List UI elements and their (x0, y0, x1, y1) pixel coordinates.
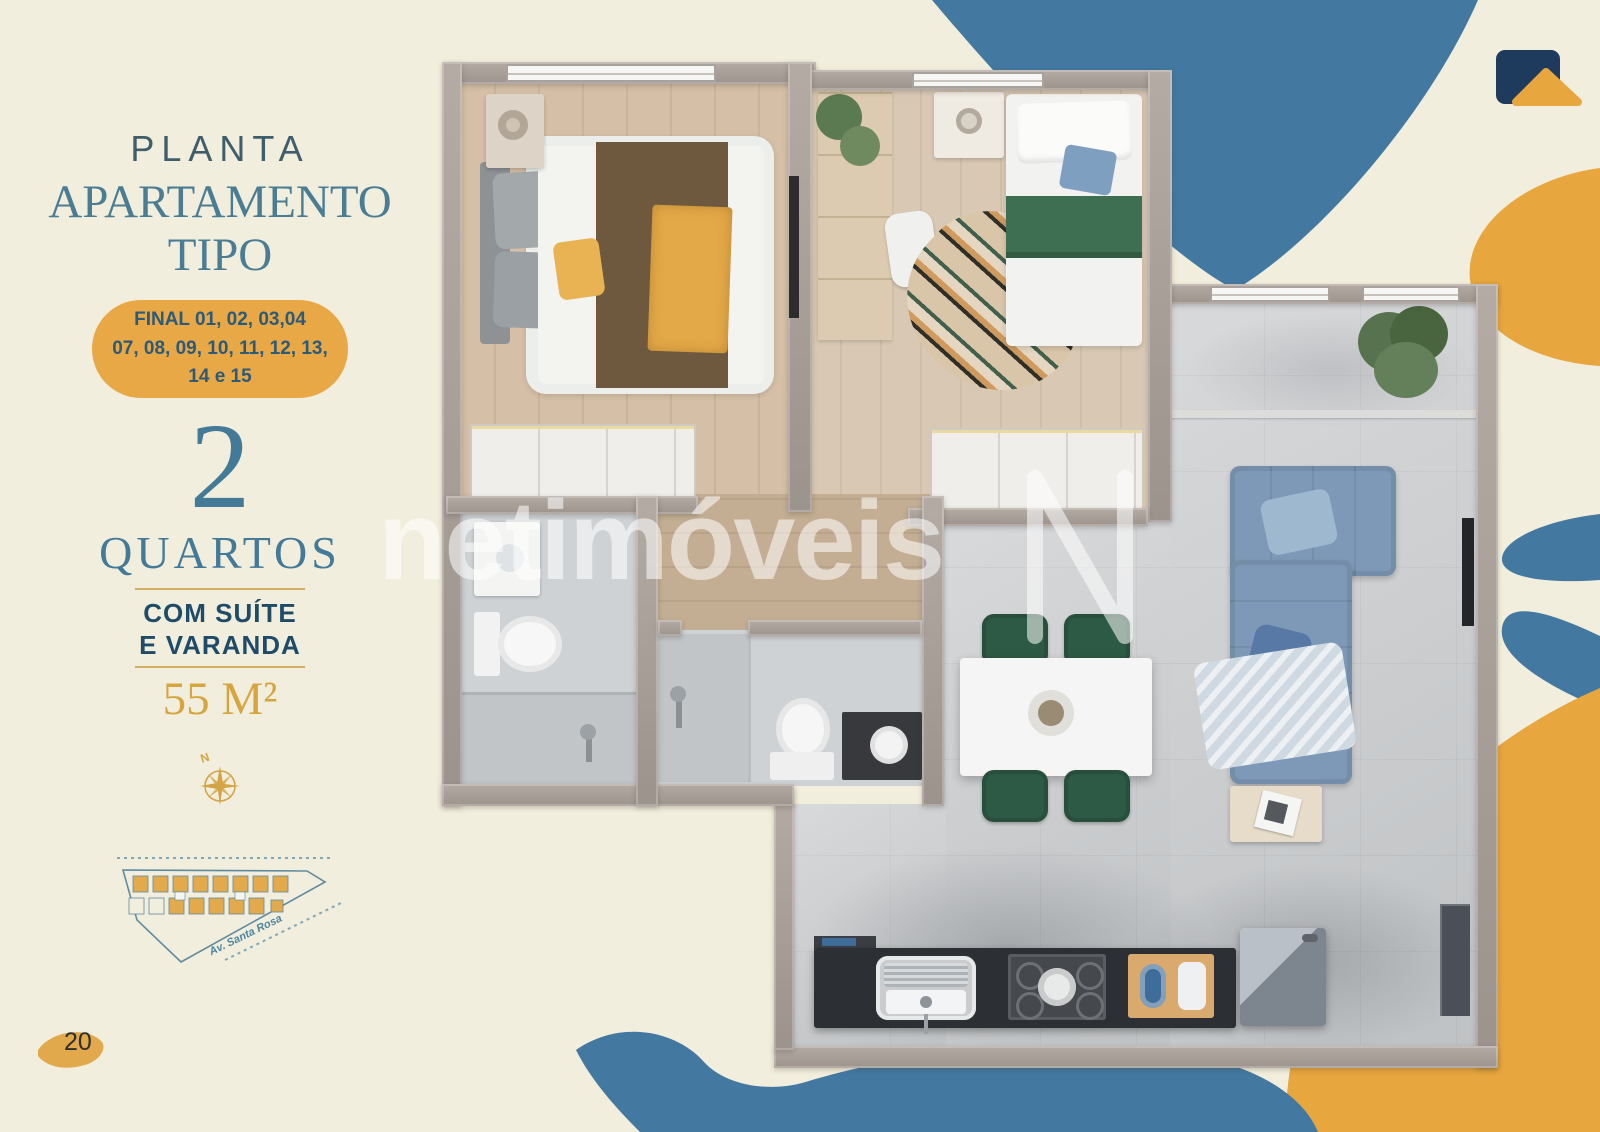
refrigerator (1240, 928, 1326, 1026)
wall (442, 62, 462, 806)
sitemap-connector (235, 892, 245, 900)
social-bath-sink (870, 726, 908, 764)
bed-1-yellow-pillow (552, 237, 606, 301)
kitchen-stove (1008, 954, 1106, 1020)
wall (774, 1046, 1498, 1068)
divider-line (135, 588, 305, 590)
window (1362, 286, 1460, 302)
kitchen-prep-board (1128, 954, 1214, 1018)
window (1210, 286, 1330, 302)
social-toilet-bowl (776, 698, 830, 760)
panel-title-line1: APARTAMENTO (40, 176, 400, 229)
info-panel: PLANTA APARTAMENTO TIPO FINAL 01, 02, 03… (40, 128, 400, 281)
rooms-count: 2 (40, 406, 400, 528)
bedroom-2-plant (840, 126, 880, 166)
sitemap-street-label: Av. Santa Rosa (206, 912, 284, 958)
compass-n-label: N (199, 750, 212, 766)
brochure-page: netimóveis PLANTA APARTAMENTO TIPO FINAL… (0, 0, 1600, 1132)
window (506, 64, 716, 82)
wall (442, 784, 794, 806)
sitemap: Av. Santa Rosa (105, 838, 365, 978)
page-number: 20 (64, 1028, 92, 1057)
bed-2-green-blanket (1006, 196, 1142, 258)
kitchen-shelf-item (822, 938, 856, 946)
balcony-plant (1352, 304, 1452, 404)
table-centerpiece (1038, 700, 1064, 726)
bedroom-1-tv (789, 176, 799, 318)
social-toilet-tank (770, 752, 834, 780)
wall (658, 620, 682, 636)
shower-head (670, 686, 686, 702)
sitemap-units-row2 (129, 898, 283, 914)
rooms-label: QUARTOS (40, 526, 400, 579)
panel-title-line2: TIPO (40, 229, 400, 282)
dining-chair (982, 770, 1048, 822)
compass-icon: N (192, 750, 248, 812)
bed-2-blue-cushion (1059, 144, 1118, 196)
shower-glass-divider (748, 634, 751, 782)
brand-logo-icon (1488, 46, 1598, 112)
sitemap-connector (175, 892, 185, 900)
wall (748, 620, 922, 636)
suite-shower-area (460, 695, 638, 787)
window (912, 72, 1044, 88)
bedroom-2-clock (956, 108, 982, 134)
bed-1-yellow-throw (647, 205, 732, 354)
watermark-text: netimóveis (378, 476, 943, 605)
kitchen-sink (876, 956, 976, 1020)
suite-toilet-tank (474, 612, 500, 676)
panel-title: APARTAMENTO TIPO (40, 176, 400, 281)
suite-toilet-bowl (498, 616, 562, 672)
balcony-glass-rail (1170, 410, 1476, 418)
living-tv (1462, 518, 1474, 626)
finals-badge-line: 14 e 15 (92, 364, 348, 391)
wall (774, 788, 794, 1050)
sitemap-units-row1 (133, 876, 288, 892)
divider-line (135, 666, 305, 668)
panel-kicker: PLANTA (40, 128, 400, 170)
bedroom-1-lamp (498, 110, 528, 140)
finals-badge: FINAL 01, 02, 03,04 07, 08, 09, 10, 11, … (92, 300, 348, 398)
shower-head (580, 724, 596, 740)
feature-line2: E VARANDA (40, 630, 400, 661)
watermark-n-icon (1005, 448, 1155, 658)
social-shower-area (656, 634, 748, 782)
feature-line1: COM SUÍTE (40, 598, 400, 629)
dining-chair (1064, 770, 1130, 822)
area-value: 55 M² (40, 672, 400, 726)
finals-badge-line: 07, 08, 09, 10, 11, 12, 13, (92, 336, 348, 363)
finals-badge-line: FINAL 01, 02, 03,04 (92, 307, 348, 334)
wall-cabinet (1440, 904, 1470, 1016)
wall (1476, 284, 1498, 1068)
